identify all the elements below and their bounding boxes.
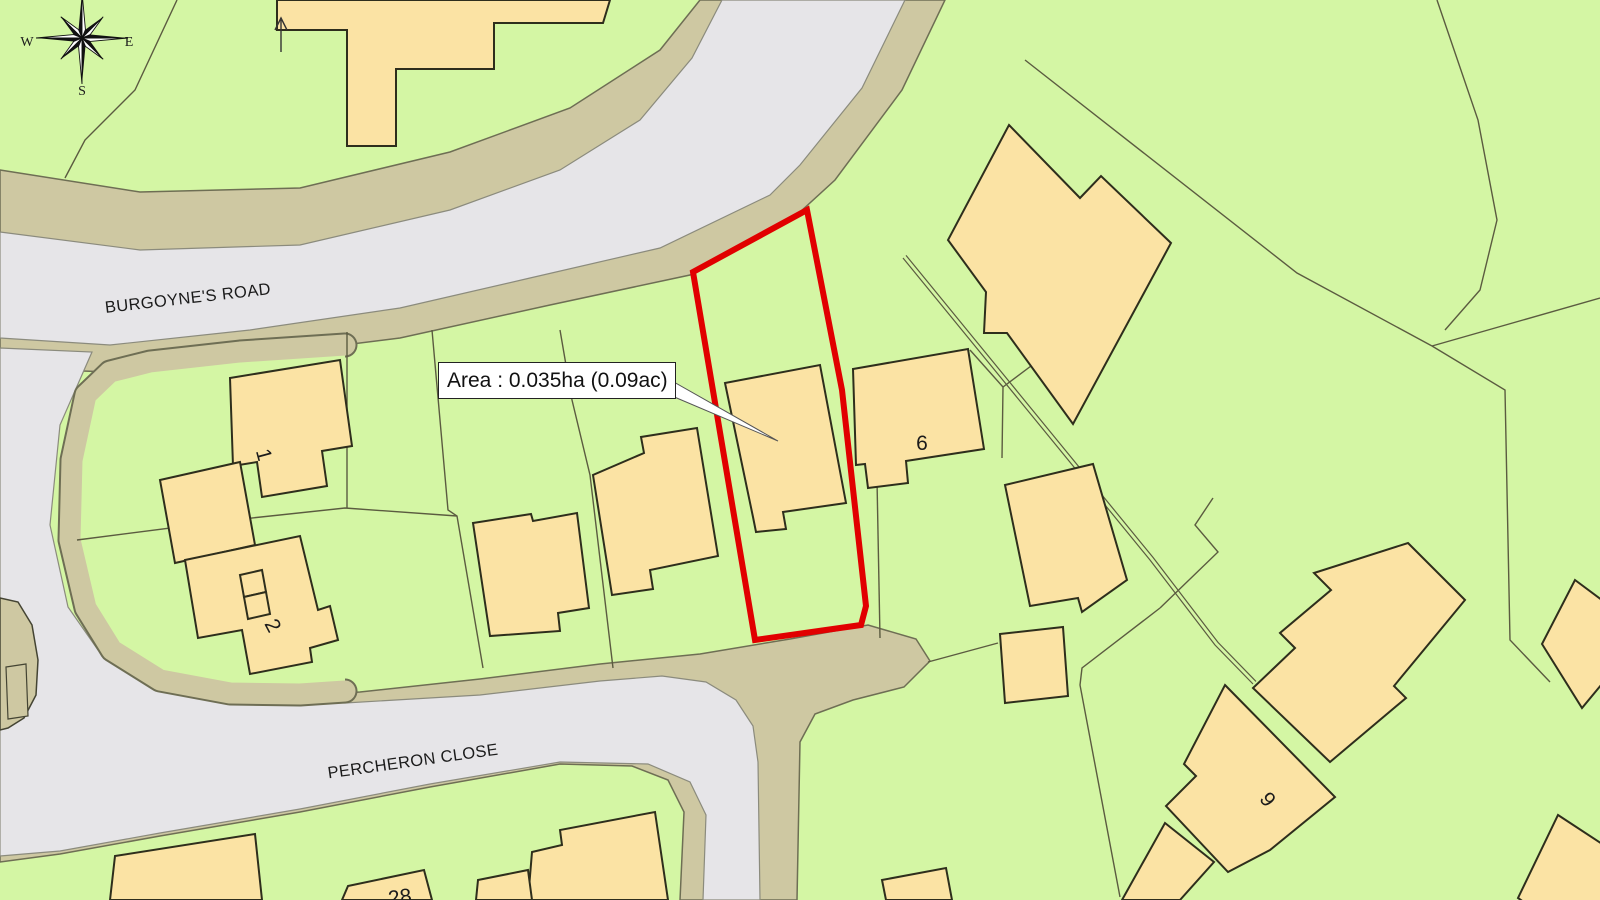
area-callout: Area : 0.035ha (0.09ac) [438, 362, 676, 399]
outbuilding-2 [244, 592, 270, 619]
site-plan-map [0, 0, 1600, 900]
building-square-east [1000, 627, 1068, 703]
site-plan: BURGOYNE'S ROAD PERCHERON CLOSE 1 2 6 9 … [0, 0, 1600, 900]
traffic-island-notch [6, 664, 28, 719]
area-callout-text: Area : 0.035ha (0.09ac) [447, 369, 668, 393]
